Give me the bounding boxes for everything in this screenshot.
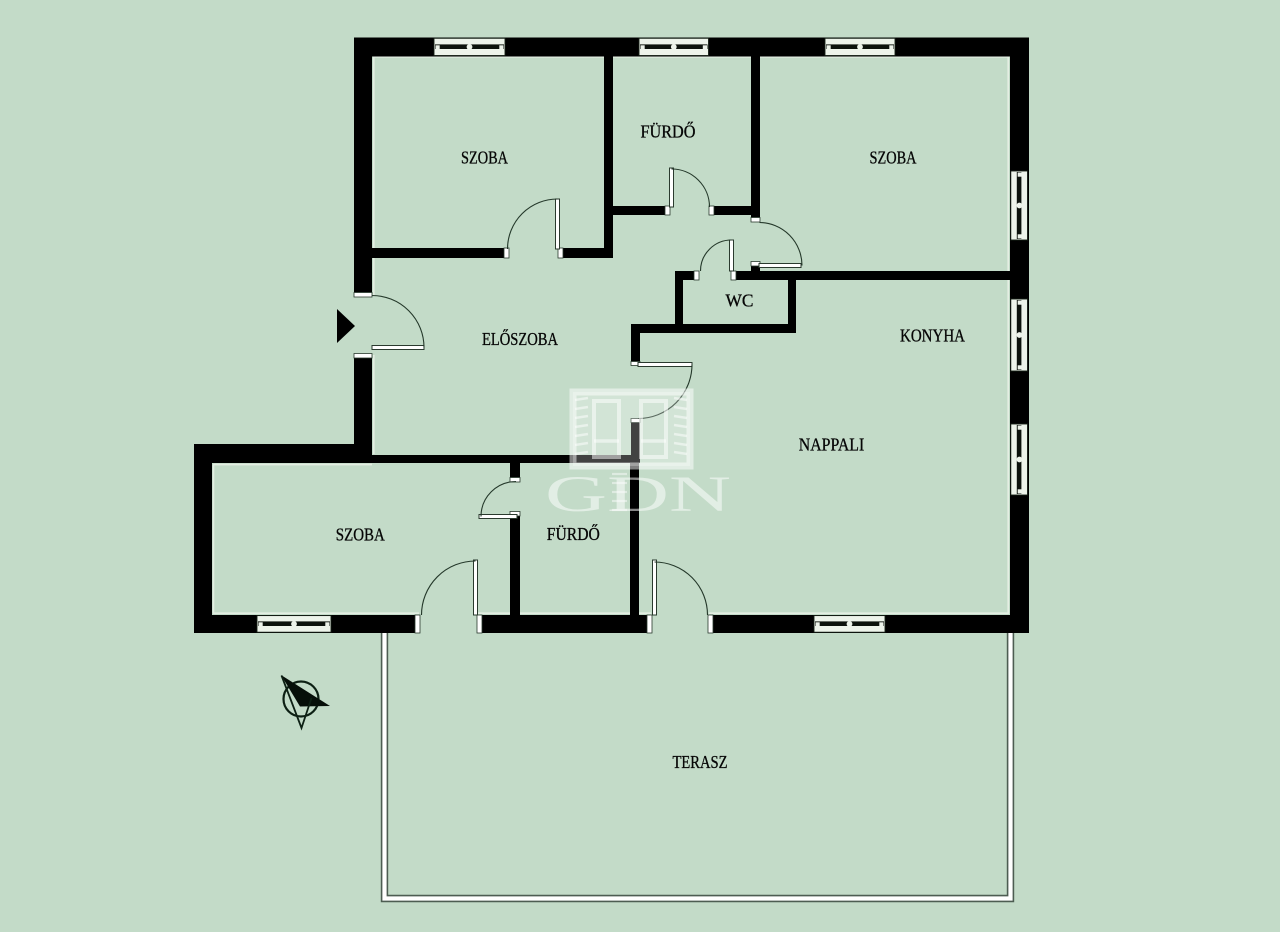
svg-text:TERASZ: TERASZ — [673, 752, 728, 772]
svg-text:NAPPALI: NAPPALI — [799, 435, 865, 455]
svg-text:GDN: GDN — [545, 467, 731, 523]
svg-text:SZOBA: SZOBA — [461, 147, 508, 167]
svg-text:SZOBA: SZOBA — [870, 148, 917, 168]
svg-text:FÜRDŐ: FÜRDŐ — [547, 524, 600, 544]
svg-text:FÜRDŐ: FÜRDŐ — [641, 122, 696, 142]
svg-text:KONYHA: KONYHA — [900, 326, 965, 346]
svg-text:SZOBA: SZOBA — [336, 525, 385, 545]
svg-text:ELŐSZOBA: ELŐSZOBA — [482, 329, 558, 349]
svg-text:WC: WC — [726, 291, 754, 311]
